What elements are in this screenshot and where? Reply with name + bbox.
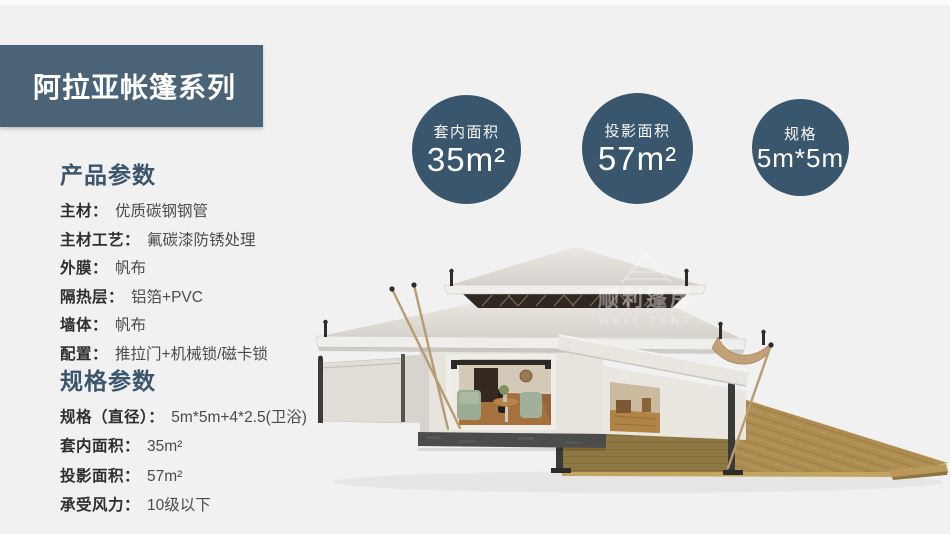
param-label: 隔热层： xyxy=(60,285,124,307)
spec-params-section: 规格参数 规格（直径）： 5m*5m+4*2.5(卫浴) 套内面积： 35m² … xyxy=(60,362,307,523)
spec-value: 5m*5m+4*2.5(卫浴) xyxy=(171,405,307,427)
param-row-material-process: 主材工艺： 氟碳漆防锈处理 xyxy=(60,228,268,257)
param-label: 主材： xyxy=(60,199,108,221)
param-value: 帆布 xyxy=(115,256,146,278)
spec-row-inner-area: 套内面积： 35m² xyxy=(60,434,307,463)
param-label: 主材工艺： xyxy=(60,228,140,250)
spec-value: 57m² xyxy=(147,468,182,486)
param-value: 推拉门+机械锁/磁卡锁 xyxy=(115,342,268,364)
param-value: 铝箔+PVC xyxy=(131,285,203,307)
param-value: 氟碳漆防锈处理 xyxy=(147,228,256,250)
badge-value: 57m² xyxy=(598,142,677,177)
main-roof xyxy=(316,301,746,354)
badge-label: 投影面积 xyxy=(604,120,670,141)
param-value: 优质碳钢钢管 xyxy=(115,199,208,221)
badge-projection-area: 投影面积 57m² xyxy=(582,93,693,204)
badge-size: 规格 5m*5m xyxy=(752,99,849,196)
series-title-banner: 阿拉亚帐篷系列 xyxy=(0,45,263,127)
param-label: 外膜： xyxy=(60,256,108,278)
badge-value: 5m*5m xyxy=(757,145,844,172)
badge-inner-area: 套内面积 35m² xyxy=(412,95,521,204)
spec-value: 10级以下 xyxy=(147,493,211,515)
front-window xyxy=(450,358,552,426)
spec-label: 投影面积： xyxy=(60,464,140,486)
product-params-section: 产品参数 主材： 优质碳钢钢管 主材工艺： 氟碳漆防锈处理 外膜： 帆布 隔热层… xyxy=(60,156,268,371)
top-divider xyxy=(0,0,950,5)
product-params-title: 产品参数 xyxy=(60,156,268,190)
spec-row-wind-resistance: 承受风力： 10级以下 xyxy=(60,493,307,522)
spec-label: 套内面积： xyxy=(60,434,140,456)
param-value: 帆布 xyxy=(115,313,146,335)
tent-rendering: 顺利篷房 WELL TENT xyxy=(308,232,950,534)
series-title: 阿拉亚帐篷系列 xyxy=(0,66,236,106)
spec-row-projection-area: 投影面积： 57m² xyxy=(60,464,307,493)
stone-base xyxy=(418,432,606,448)
badge-label: 套内面积 xyxy=(433,121,499,142)
spec-row-size: 规格（直径）： 5m*5m+4*2.5(卫浴) xyxy=(60,405,307,434)
badge-value: 35m² xyxy=(427,143,506,178)
param-row-wall: 墙体： 帆布 xyxy=(60,313,268,342)
param-row-outer-membrane: 外膜： 帆布 xyxy=(60,256,268,285)
top-roof xyxy=(444,248,706,308)
page: 阿拉亚帐篷系列 产品参数 主材： 优质碳钢钢管 主材工艺： 氟碳漆防锈处理 外膜… xyxy=(0,0,950,534)
spec-value: 35m² xyxy=(147,438,182,456)
param-label: 配置： xyxy=(60,342,108,364)
param-label: 墙体： xyxy=(60,313,108,335)
spec-label: 规格（直径）： xyxy=(60,405,164,427)
spec-label: 承受风力： xyxy=(60,493,140,515)
badge-label: 规格 xyxy=(784,123,817,144)
param-row-insulation: 隔热层： 铝箔+PVC xyxy=(60,285,268,314)
tent-illustration xyxy=(308,232,950,534)
param-row-material: 主材： 优质碳钢钢管 xyxy=(60,199,268,228)
spec-params-title: 规格参数 xyxy=(60,362,307,396)
